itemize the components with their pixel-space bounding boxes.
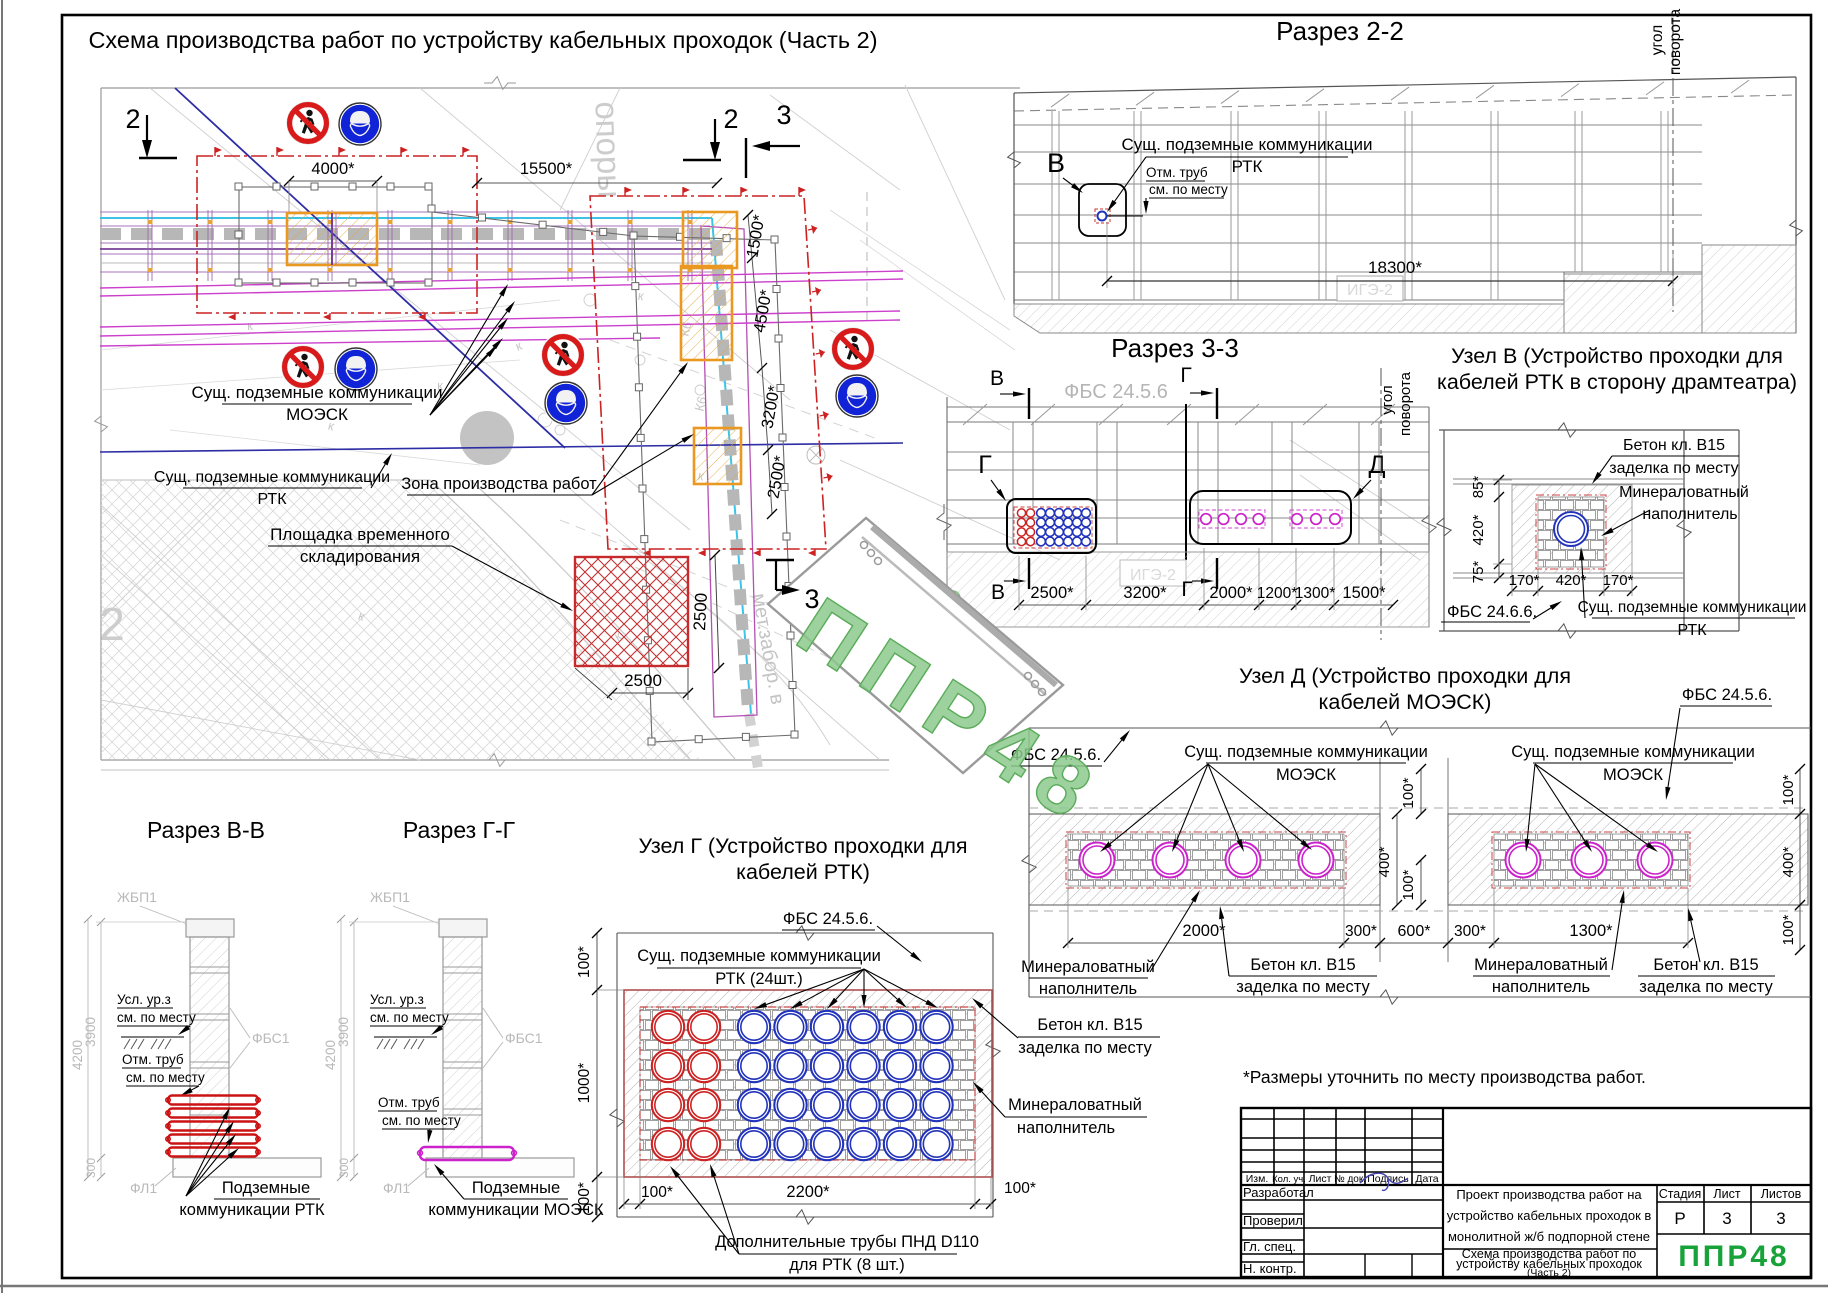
- svg-text:см. по месту: см. по месту: [126, 1070, 205, 1085]
- svg-text:Сущ. подземные коммуникации: Сущ. подземные коммуникации: [1511, 743, 1755, 761]
- svg-text:наполнитель: наполнитель: [1642, 506, 1737, 523]
- svg-text:400*: 400*: [1376, 846, 1393, 877]
- svg-text:ППР48: ППР48: [1678, 1240, 1790, 1273]
- svg-text:Г: Г: [1180, 364, 1191, 387]
- svg-text:Сущ. подземные коммуникации: Сущ. подземные коммуникации: [1578, 599, 1807, 616]
- svg-text:Г: Г: [978, 451, 992, 479]
- svg-text:Площадка временного: Площадка временного: [270, 525, 450, 544]
- svg-text:коммуникации РТК: коммуникации РТК: [179, 1201, 325, 1219]
- svg-text:1200*: 1200*: [1257, 585, 1298, 602]
- svg-text:Д: Д: [1369, 451, 1386, 479]
- svg-text:Стадия: Стадия: [1659, 1187, 1702, 1201]
- svg-text:100*: 100*: [1004, 1180, 1036, 1197]
- svg-text:кабелей РТК): кабелей РТК): [736, 860, 870, 884]
- svg-text:Бетон кл. B15: Бетон кл. B15: [1623, 437, 1725, 454]
- svg-text:Проверил: Проверил: [1243, 1213, 1303, 1228]
- svg-text:ФБС 24.6.6.: ФБС 24.6.6.: [1447, 603, 1537, 621]
- svg-text:3: 3: [776, 100, 791, 130]
- svg-text:Лист: Лист: [1309, 1173, 1332, 1185]
- svg-text:Разрез 2-2: Разрез 2-2: [1276, 16, 1404, 46]
- svg-text:1300*: 1300*: [1569, 922, 1613, 940]
- svg-text:1300*: 1300*: [1295, 585, 1336, 602]
- svg-text:В: В: [990, 367, 1004, 390]
- svg-text:см. по месту: см. по месту: [370, 1010, 449, 1025]
- svg-text:3: 3: [804, 584, 819, 614]
- svg-text:В: В: [1047, 148, 1065, 178]
- svg-text:420*: 420*: [1470, 514, 1487, 545]
- svg-text:Г: Г: [1181, 578, 1192, 601]
- svg-text:2000*: 2000*: [1209, 584, 1253, 602]
- svg-text:Бетон кл. B15: Бетон кл. B15: [1250, 956, 1355, 974]
- svg-text:1000*: 1000*: [576, 1063, 593, 1104]
- svg-text:ФЛ1: ФЛ1: [383, 1180, 410, 1196]
- svg-text:опоры: опоры: [588, 101, 628, 199]
- svg-text:400*: 400*: [1780, 846, 1797, 877]
- svg-text:см. по месту: см. по месту: [1149, 182, 1228, 197]
- svg-text:Разрез В-В: Разрез В-В: [147, 817, 265, 843]
- svg-text:100*: 100*: [576, 946, 593, 978]
- svg-text:РТК: РТК: [1232, 157, 1263, 176]
- svg-text:Сущ. подземные коммуникации: Сущ. подземные коммуникации: [192, 383, 443, 402]
- svg-text:Отм. труб: Отм. труб: [378, 1095, 440, 1110]
- svg-text:4200: 4200: [323, 1040, 338, 1070]
- svg-text:170*: 170*: [1509, 572, 1540, 589]
- svg-text:85*: 85*: [1470, 476, 1487, 499]
- svg-text:заделка по месту: заделка по месту: [1236, 978, 1370, 996]
- svg-text:ФБС 24.5.6: ФБС 24.5.6: [1064, 381, 1168, 403]
- svg-text:100*: 100*: [1780, 914, 1797, 945]
- svg-text:см. по месту: см. по месту: [382, 1113, 461, 1128]
- svg-text:Отм. труб: Отм. труб: [122, 1052, 184, 1067]
- svg-text:кабелей РТК в сторону драмтеат: кабелей РТК в сторону драмтеатра): [1437, 370, 1797, 394]
- svg-text:Усл. ур.з: Усл. ур.з: [117, 992, 171, 1007]
- svg-text:МОЭСК: МОЭСК: [286, 405, 348, 424]
- svg-text:поворота: поворота: [1667, 9, 1684, 76]
- svg-text:наполнитель: наполнитель: [1039, 980, 1137, 998]
- svg-text:к: к: [247, 318, 253, 333]
- svg-text:РТК: РТК: [257, 491, 287, 508]
- svg-text:Н. контр.: Н. контр.: [1243, 1261, 1297, 1276]
- svg-text:Разрез Г-Г: Разрез Г-Г: [403, 817, 516, 843]
- svg-text:2: 2: [125, 104, 140, 134]
- svg-text:18300*: 18300*: [1368, 258, 1422, 277]
- svg-text:МОЭСК: МОЭСК: [1276, 766, 1336, 784]
- svg-text:В: В: [991, 581, 1005, 604]
- svg-text:Листов: Листов: [1761, 1187, 1802, 1201]
- svg-text:300: 300: [84, 1158, 98, 1178]
- svg-text:Минераловатный: Минераловатный: [1021, 958, 1155, 976]
- svg-text:Разрез 3-3: Разрез 3-3: [1111, 333, 1239, 363]
- svg-text:заделка по месту: заделка по месту: [1018, 1039, 1152, 1057]
- svg-text:Отм. труб: Отм. труб: [1146, 165, 1208, 180]
- svg-text:4200: 4200: [70, 1040, 85, 1070]
- svg-text:1500*: 1500*: [1342, 584, 1386, 602]
- svg-text:Лист: Лист: [1713, 1187, 1740, 1201]
- svg-text:100*: 100*: [1400, 869, 1417, 900]
- svg-text:Дата: Дата: [1415, 1173, 1438, 1185]
- svg-text:*Размеры уточнить по месту про: *Размеры уточнить по месту производства …: [1243, 1067, 1646, 1087]
- svg-text:заделка по месту: заделка по месту: [1609, 460, 1738, 477]
- svg-text:Подземные: Подземные: [222, 1179, 310, 1197]
- svg-text:Бетон кл. B15: Бетон кл. B15: [1653, 956, 1758, 974]
- svg-text:2500*: 2500*: [1030, 584, 1074, 602]
- svg-text:Р: Р: [1674, 1209, 1685, 1228]
- svg-text:МОЭСК: МОЭСК: [1603, 766, 1663, 784]
- svg-text:3900: 3900: [83, 1017, 98, 1047]
- svg-text:монолитной ж/б подпорной стене: монолитной ж/б подпорной стене: [1448, 1229, 1650, 1244]
- svg-text:Минераловатный: Минераловатный: [1474, 956, 1608, 974]
- svg-text:2500: 2500: [624, 671, 662, 690]
- svg-text:300: 300: [337, 1158, 351, 1178]
- svg-text:см. по месту: см. по месту: [117, 1010, 196, 1025]
- svg-text:2500: 2500: [690, 592, 711, 631]
- svg-text:кабелей МОЭСК): кабелей МОЭСК): [1319, 690, 1492, 714]
- svg-text:15500*: 15500*: [520, 160, 573, 178]
- svg-text:ЖБП1: ЖБП1: [117, 889, 157, 905]
- svg-text:Минераловатный: Минераловатный: [1008, 1096, 1142, 1114]
- svg-text:Узел В (Устройство проходки дл: Узел В (Устройство проходки для: [1451, 344, 1783, 368]
- svg-text:170*: 170*: [1603, 572, 1634, 589]
- svg-text:100*: 100*: [1780, 774, 1797, 805]
- svg-text:3: 3: [1776, 1209, 1785, 1228]
- svg-text:300*: 300*: [1345, 923, 1377, 940]
- svg-text:100*: 100*: [576, 1182, 593, 1214]
- svg-text:300*: 300*: [1454, 923, 1486, 940]
- svg-text:Усл. ур.з: Усл. ур.з: [370, 992, 424, 1007]
- svg-text:Дополнительные трубы ПНД D110: Дополнительные трубы ПНД D110: [715, 1233, 979, 1251]
- svg-text:420*: 420*: [1556, 572, 1587, 589]
- svg-text:устройство кабельных проходок: устройство кабельных проходок в: [1447, 1208, 1652, 1223]
- svg-text:Узел Г (Устройство проходки дл: Узел Г (Устройство проходки для: [638, 834, 967, 858]
- svg-text:3200*: 3200*: [1123, 584, 1167, 602]
- svg-text:3900: 3900: [336, 1017, 351, 1047]
- svg-text:ИГЭ-2: ИГЭ-2: [1347, 282, 1393, 299]
- svg-text:РТК (24шт.): РТК (24шт.): [715, 970, 802, 988]
- svg-text:Зона производства работ: Зона производства работ: [401, 475, 597, 493]
- svg-text:ФЛ1: ФЛ1: [130, 1180, 157, 1196]
- svg-text:для РТК (8 шт.): для РТК (8 шт.): [789, 1256, 905, 1274]
- svg-text:(Часть 2): (Часть 2): [1527, 1267, 1571, 1279]
- svg-text:2: 2: [723, 104, 738, 134]
- svg-text:Сущ. подземные коммуникации: Сущ. подземные коммуникации: [1122, 135, 1373, 154]
- svg-text:ФБС1: ФБС1: [252, 1030, 290, 1046]
- svg-text:100*: 100*: [641, 1184, 673, 1201]
- svg-text:Кол. уч.: Кол. уч.: [1272, 1174, 1306, 1185]
- svg-text:ФБС 24.5.6.: ФБС 24.5.6.: [783, 910, 873, 928]
- svg-text:наполнитель: наполнитель: [1017, 1119, 1115, 1137]
- svg-text:Проект производства работ на: Проект производства работ на: [1456, 1187, 1642, 1202]
- svg-text:2: 2: [99, 598, 125, 650]
- svg-text:Разработал: Разработал: [1243, 1185, 1314, 1200]
- svg-text:Гл. спец.: Гл. спец.: [1243, 1239, 1296, 1254]
- svg-text:600*: 600*: [1398, 923, 1431, 940]
- svg-text:заделка по месту: заделка по месту: [1639, 978, 1773, 996]
- svg-text:РТК: РТК: [1677, 622, 1707, 639]
- svg-text:ИГЭ-2: ИГЭ-2: [1130, 567, 1176, 584]
- svg-text:100*: 100*: [1400, 777, 1417, 808]
- svg-text:поворота: поворота: [1397, 371, 1414, 436]
- svg-text:складирования: складирования: [300, 547, 420, 566]
- svg-text:Сущ. подземные коммуникации: Сущ. подземные коммуникации: [154, 469, 390, 486]
- svg-text:угол: угол: [1379, 385, 1396, 414]
- svg-text:№ док.: № док.: [1334, 1174, 1366, 1185]
- svg-text:2000*: 2000*: [1182, 922, 1226, 940]
- svg-text:ФБС1: ФБС1: [505, 1030, 543, 1046]
- svg-text:Бетон кл. B15: Бетон кл. B15: [1037, 1016, 1142, 1034]
- svg-text:Минераловатный: Минераловатный: [1619, 484, 1749, 501]
- svg-text:Изм.: Изм.: [1246, 1173, 1269, 1185]
- svg-text:3: 3: [1722, 1209, 1731, 1228]
- svg-text:Подземные: Подземные: [472, 1179, 560, 1197]
- svg-text:Узел Д (Устройство проходки дл: Узел Д (Устройство проходки для: [1239, 664, 1571, 688]
- svg-text:Схема производства работ по ус: Схема производства работ по устройству к…: [88, 27, 877, 53]
- svg-text:ЖБП1: ЖБП1: [370, 889, 410, 905]
- svg-text:Сущ. подземные коммуникации: Сущ. подземные коммуникации: [1184, 743, 1428, 761]
- svg-text:ФБС 24.5.6.: ФБС 24.5.6.: [1682, 686, 1772, 704]
- svg-text:наполнитель: наполнитель: [1492, 978, 1590, 996]
- svg-text:2200*: 2200*: [786, 1183, 830, 1201]
- svg-text:Сущ. подземные коммуникации: Сущ. подземные коммуникации: [637, 947, 881, 965]
- svg-text:75*: 75*: [1470, 561, 1487, 584]
- svg-text:4000*: 4000*: [311, 160, 355, 178]
- svg-text:угол: угол: [1649, 25, 1666, 55]
